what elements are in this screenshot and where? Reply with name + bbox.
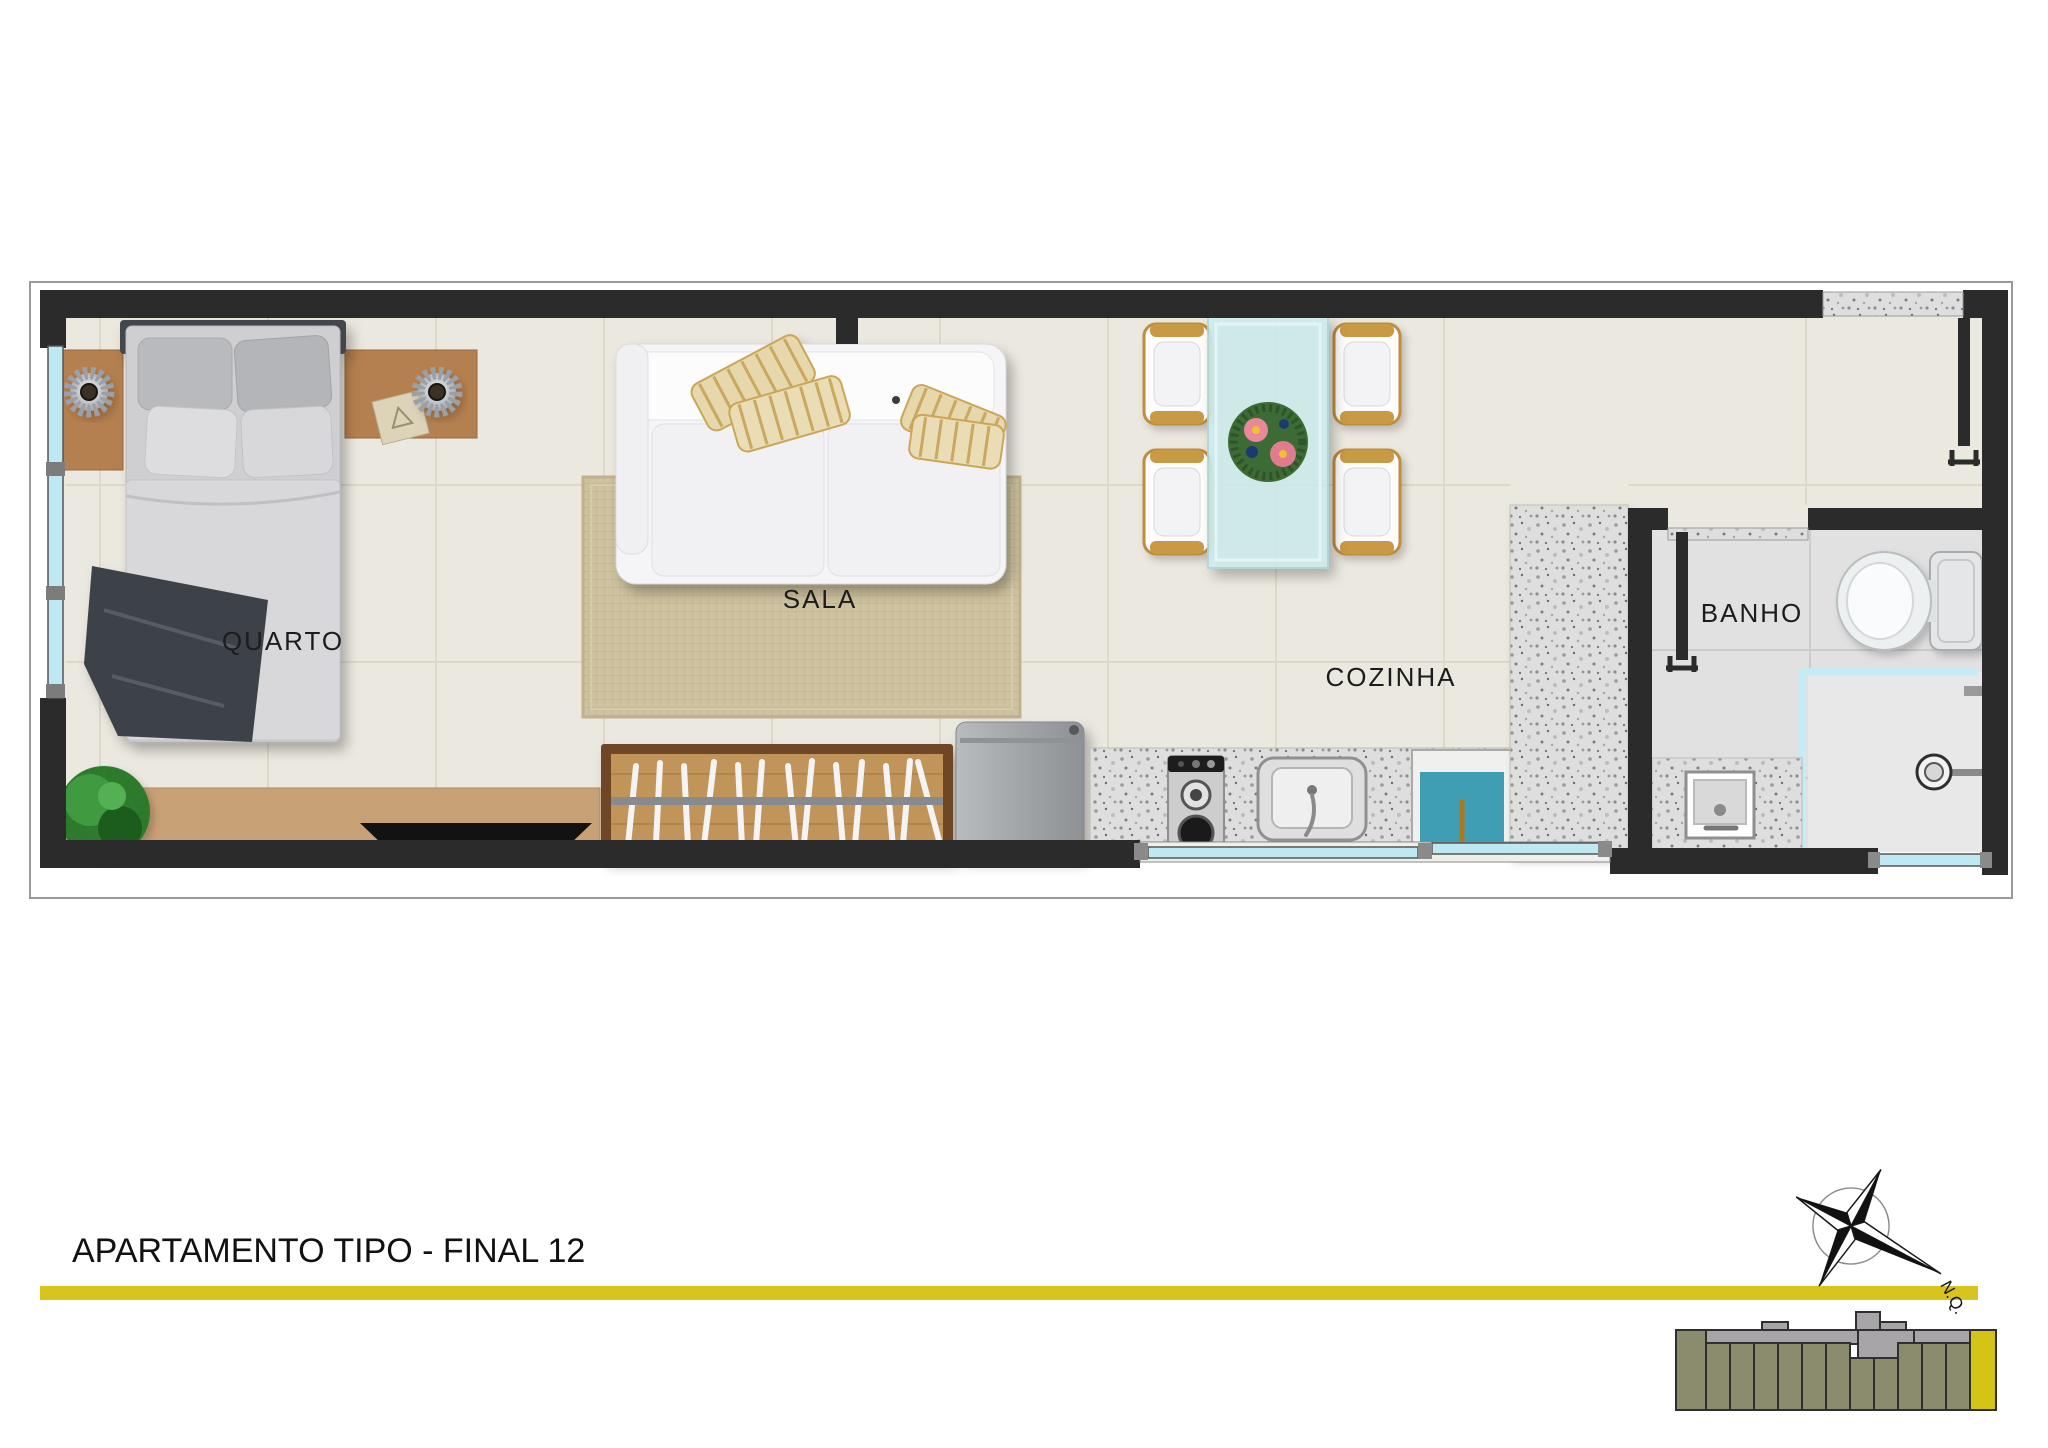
tuft-button [892,396,900,404]
kitchen-sink [1258,758,1366,840]
sofa [616,323,1018,584]
building-key-plan [1676,1312,1996,1410]
plan-title: APARTAMENTO TIPO - FINAL 12 [72,1232,585,1270]
wall-bath-top [1808,508,1984,530]
title-block: APARTAMENTO TIPO - FINAL 12 [40,1232,1978,1300]
dining-chair [1144,324,1210,424]
wall-bottom [40,840,1140,868]
wall-left-top [40,290,66,348]
sala-label: SALA [783,584,858,614]
dining-chair [1144,450,1210,554]
banho-label: BANHO [1701,598,1803,628]
flower-centerpiece [1228,402,1308,482]
laundry-tank [1412,750,1512,854]
granite-cabinet [1510,505,1628,857]
window-bathroom [1878,854,1982,866]
wall-top [40,290,1823,318]
dining-chair [1334,450,1400,554]
pillow [138,338,232,410]
rack-bar [611,797,943,805]
keyplan-corridor [1706,1330,1970,1344]
pillow [240,406,333,479]
floor-plan: QUARTO [30,282,2012,898]
fridge-hinge [1069,725,1079,735]
wall-bath-left [1628,508,1652,852]
shower-wall-stub [1964,686,1982,696]
keyplan-units [1706,1343,1970,1410]
stove-cooktop [1168,756,1224,854]
table-lamp-left [70,373,108,411]
wall-stub-quarto-sala [836,318,858,344]
window-kitchen-1 [1148,847,1418,858]
toilet [1837,552,1982,650]
wall-bath-top-left [1628,508,1668,530]
sofa-arm [616,344,648,554]
entry-threshold [1823,292,1963,316]
keyplan-highlighted-unit [1970,1330,1996,1410]
wall-right [1982,290,2008,875]
window-bedroom [48,346,63,698]
table-lamp-right [418,373,456,411]
quarto-label: QUARTO [222,626,344,656]
pillow [234,335,333,413]
fridge [956,722,1084,856]
cozinha-label: COZINHA [1326,662,1457,692]
shower-floor [1808,672,1982,852]
pillow [144,406,237,479]
bathroom-threshold [1668,528,1808,540]
bathroom-vanity [1652,758,1802,854]
floor-plan-canvas: QUARTO [0,0,2048,1448]
keyplan-unit-end-left [1676,1330,1706,1410]
yellow-divider [40,1286,1978,1300]
window-kitchen-2 [1432,843,1600,854]
dining-chair [1334,324,1400,424]
entry-door [1958,318,1970,446]
room-banho: BANHO [1652,530,1982,854]
bathroom-door [1676,532,1688,660]
